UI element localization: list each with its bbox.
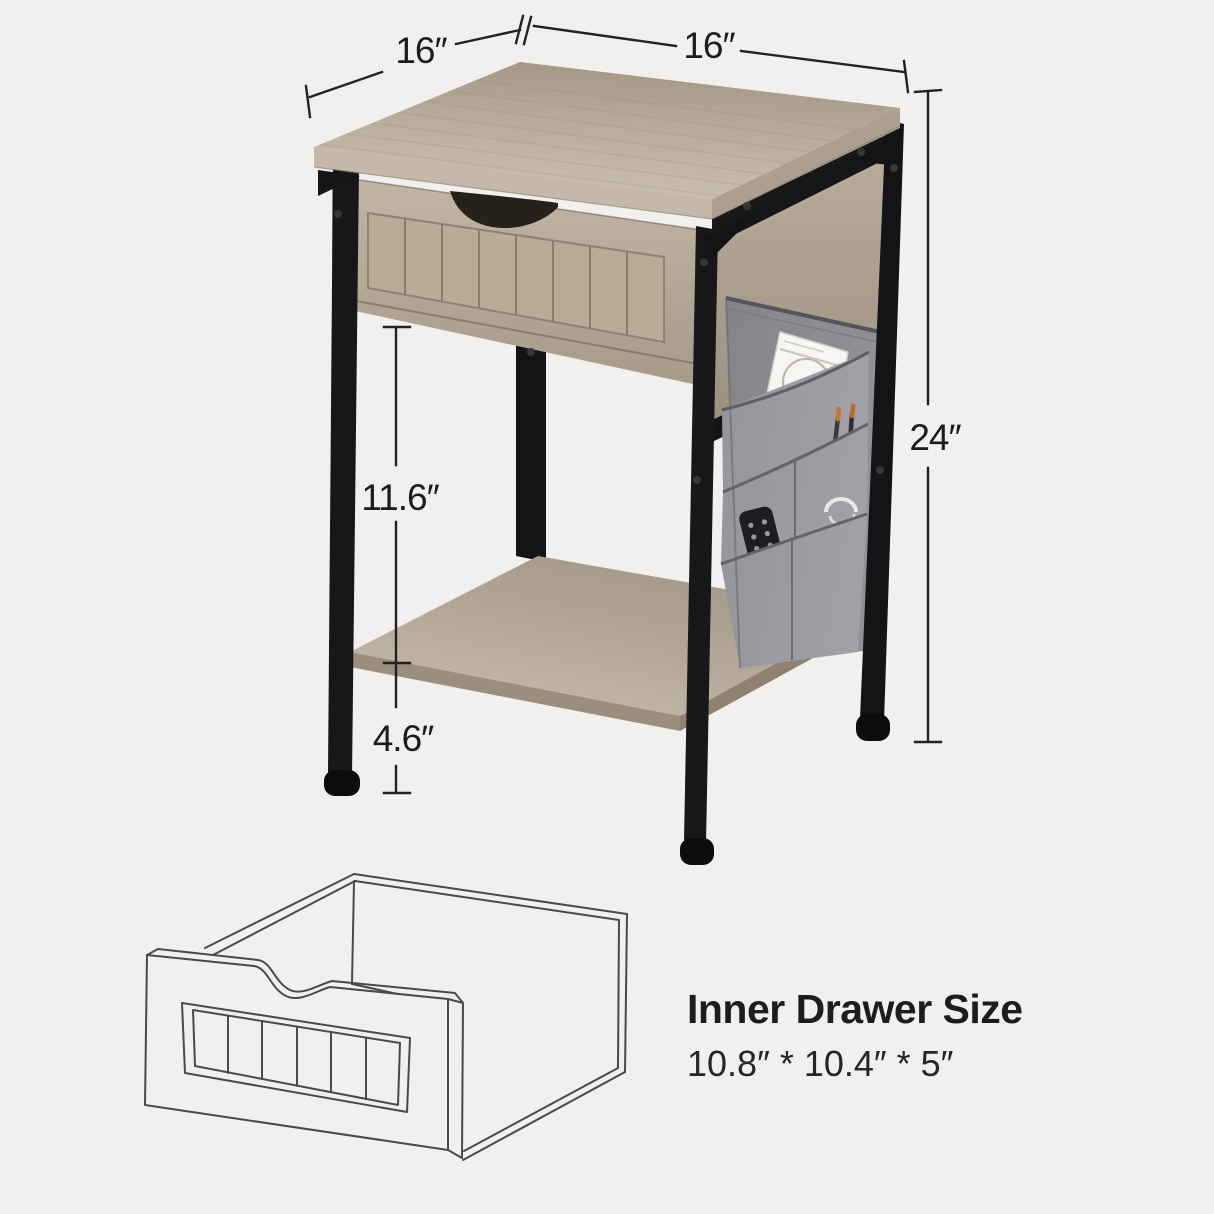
dimension-label-clearance: 11.6″ <box>361 477 439 518</box>
dimension-height: 24″ <box>909 90 961 742</box>
storage-caddy <box>721 298 880 668</box>
dimension-shelf-height: 4.6″ <box>373 664 434 793</box>
dimension-label-depth: 16″ <box>395 30 447 71</box>
drawer-size-title: Inner Drawer Size <box>687 986 1023 1032</box>
leg-rear-left <box>516 330 546 562</box>
nightstand-dimension-diagram: 16″ 16″ 24″ 11.6″ <box>0 0 1214 1214</box>
dimension-label-height: 24″ <box>909 417 961 458</box>
inner-drawer-size: Inner Drawer Size 10.8″ * 10.4″ * 5″ <box>687 986 1023 1084</box>
drawer-line-art <box>145 874 627 1160</box>
dimension-label-width: 16″ <box>683 25 735 66</box>
drawer-size-value: 10.8″ * 10.4″ * 5″ <box>687 1043 954 1084</box>
dimension-label-shelf-height: 4.6″ <box>373 718 434 759</box>
product-dimension-image: 16″ 16″ 24″ 11.6″ <box>0 0 1214 1214</box>
leg-front-left <box>324 162 360 796</box>
